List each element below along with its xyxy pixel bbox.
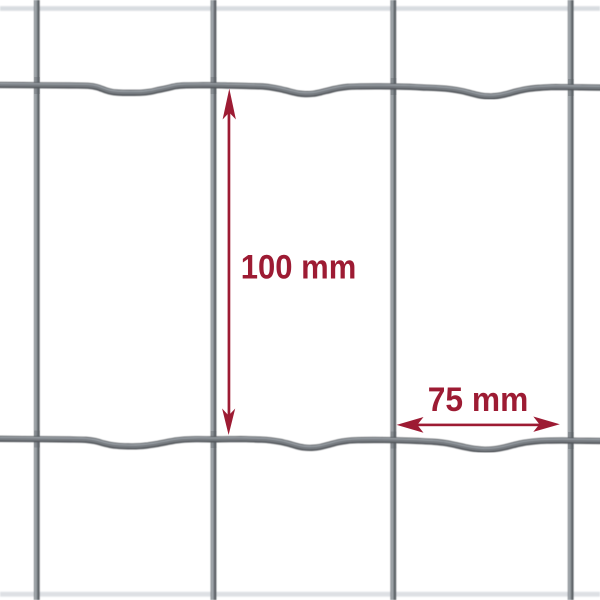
svg-text:75 mm: 75 mm: [428, 381, 529, 419]
svg-text:100 mm: 100 mm: [241, 249, 356, 287]
